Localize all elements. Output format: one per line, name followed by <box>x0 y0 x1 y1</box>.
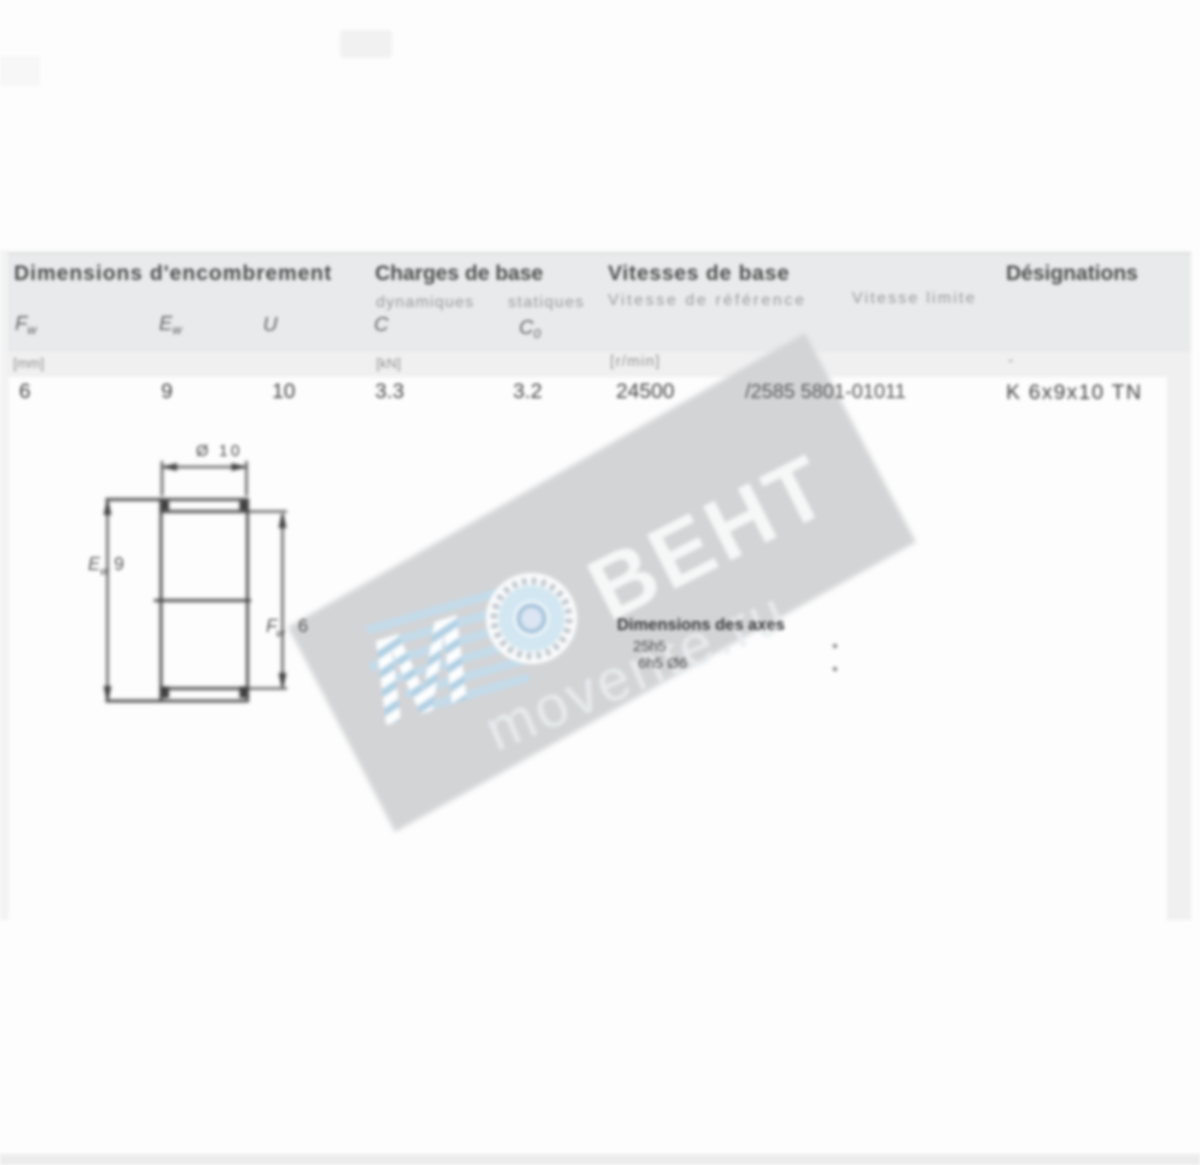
svg-text:Dimensions des axes: Dimensions des axes <box>617 616 785 634</box>
svg-text:25h5: 25h5 <box>633 638 666 655</box>
svg-text:Ø 10: Ø 10 <box>196 443 243 460</box>
svg-text:6h5 Ø6: 6h5 Ø6 <box>638 655 687 672</box>
svg-text:w: w <box>100 564 110 578</box>
svg-text:9: 9 <box>114 554 124 574</box>
svg-text:6: 6 <box>298 616 308 636</box>
svg-text:w: w <box>276 626 286 640</box>
